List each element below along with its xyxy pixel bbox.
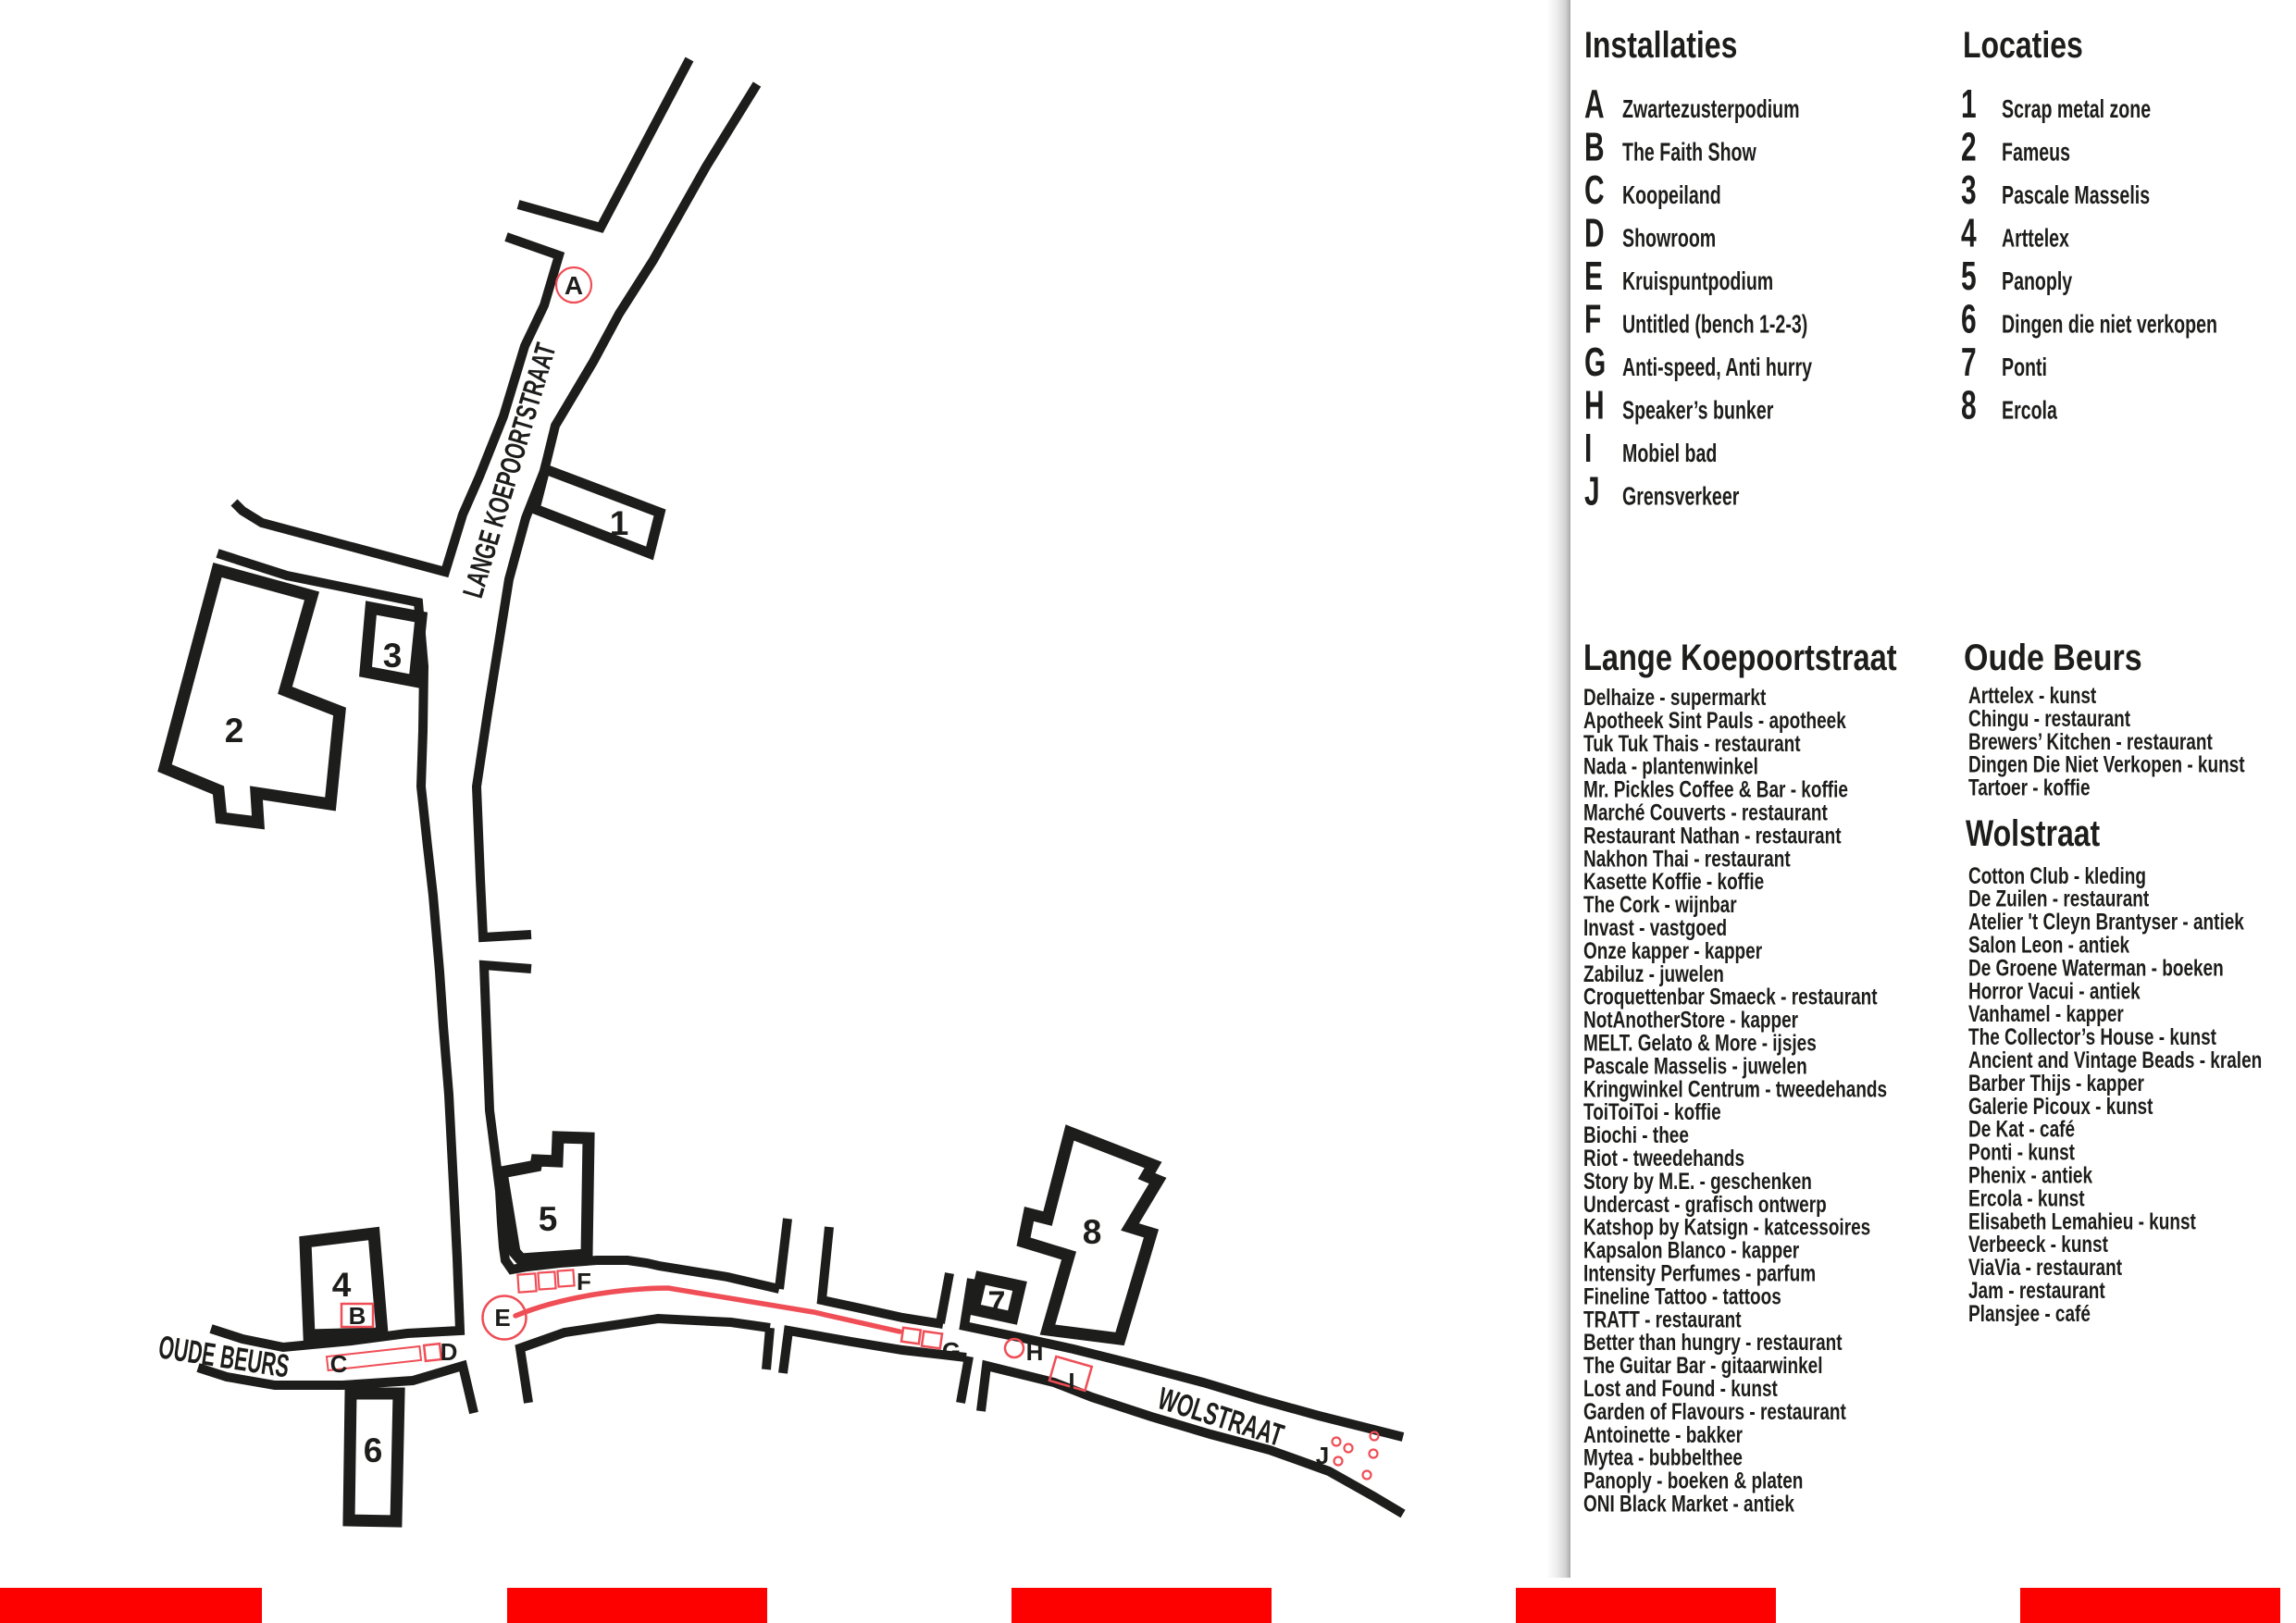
svg-text:The Faith Show: The Faith Show — [1622, 138, 1756, 167]
svg-text:J: J — [1584, 468, 1600, 514]
svg-text:Lange Koepoortstraat: Lange Koepoortstraat — [1583, 637, 1897, 678]
svg-text:Arttelex: Arttelex — [2002, 224, 2069, 253]
svg-text:8: 8 — [1961, 382, 1977, 427]
svg-text:E: E — [494, 1304, 510, 1332]
svg-text:H: H — [1026, 1338, 1044, 1366]
svg-text:3: 3 — [1961, 167, 1977, 212]
svg-text:A: A — [1584, 81, 1605, 126]
svg-text:Speaker’s bunker: Speaker’s bunker — [1622, 396, 1774, 425]
svg-text:B: B — [1584, 124, 1605, 169]
svg-text:C: C — [330, 1350, 348, 1378]
svg-text:Panoply: Panoply — [2002, 266, 2073, 295]
svg-text:Mobiel bad: Mobiel bad — [1622, 439, 1717, 467]
svg-text:Showroom: Showroom — [1622, 224, 1716, 253]
svg-text:Ponti: Ponti — [2002, 353, 2047, 381]
svg-text:Scrap metal zone: Scrap metal zone — [2002, 94, 2151, 123]
svg-text:Locaties: Locaties — [1963, 24, 2083, 66]
svg-text:Koopeiland: Koopeiland — [1622, 180, 1721, 209]
svg-text:Oude Beurs: Oude Beurs — [1964, 636, 2142, 677]
svg-text:7: 7 — [988, 1285, 1006, 1320]
svg-text:3: 3 — [383, 637, 403, 675]
svg-text:4: 4 — [1961, 210, 1977, 255]
svg-text:Grensverkeer: Grensverkeer — [1622, 482, 1740, 511]
svg-text:2: 2 — [1961, 124, 1977, 169]
svg-text:A: A — [565, 271, 583, 300]
svg-text:ONI Black Market - antiek: ONI Black Market - antiek — [1583, 1491, 1794, 1517]
svg-text:1: 1 — [610, 504, 629, 542]
svg-text:G: G — [942, 1337, 961, 1365]
svg-text:6: 6 — [364, 1431, 383, 1469]
svg-text:Wolstraat: Wolstraat — [1966, 812, 2100, 854]
svg-text:I: I — [1068, 1368, 1074, 1395]
svg-text:4: 4 — [332, 1266, 352, 1304]
svg-text:Plansjee - café: Plansjee - café — [1968, 1300, 2091, 1326]
svg-text:G: G — [1584, 339, 1606, 384]
svg-text:Untitled (bench 1-2-3): Untitled (bench 1-2-3) — [1622, 310, 1807, 339]
svg-text:7: 7 — [1961, 339, 1977, 384]
svg-text:1: 1 — [1961, 81, 1977, 126]
svg-text:Kruispuntpodium: Kruispuntpodium — [1622, 266, 1773, 295]
svg-text:Tartoer - koffie: Tartoer - koffie — [1968, 774, 2091, 800]
svg-text:C: C — [1584, 167, 1605, 212]
svg-text:F: F — [577, 1268, 591, 1295]
svg-text:Zwartezusterpodium: Zwartezusterpodium — [1622, 94, 1800, 123]
svg-text:Dingen die niet verkopen: Dingen die niet verkopen — [2002, 310, 2217, 339]
svg-text:H: H — [1584, 382, 1605, 427]
svg-text:F: F — [1584, 296, 1601, 341]
svg-text:5: 5 — [1961, 253, 1977, 298]
svg-text:J: J — [1316, 1442, 1329, 1469]
svg-text:8: 8 — [1083, 1213, 1102, 1251]
svg-text:D: D — [441, 1338, 458, 1366]
svg-text:E: E — [1584, 253, 1603, 298]
svg-text:5: 5 — [539, 1200, 558, 1238]
svg-text:D: D — [1584, 210, 1605, 255]
svg-text:Ercola: Ercola — [2002, 396, 2057, 425]
svg-text:Pascale Masselis: Pascale Masselis — [2002, 180, 2150, 209]
svg-text:6: 6 — [1961, 296, 1977, 341]
svg-text:Installaties: Installaties — [1584, 24, 1737, 66]
svg-text:Anti-speed, Anti hurry: Anti-speed, Anti hurry — [1622, 353, 1812, 381]
svg-text:B: B — [349, 1302, 366, 1330]
svg-text:2: 2 — [225, 712, 244, 750]
svg-text:Fameus: Fameus — [2002, 138, 2070, 167]
svg-text:I: I — [1584, 425, 1592, 470]
